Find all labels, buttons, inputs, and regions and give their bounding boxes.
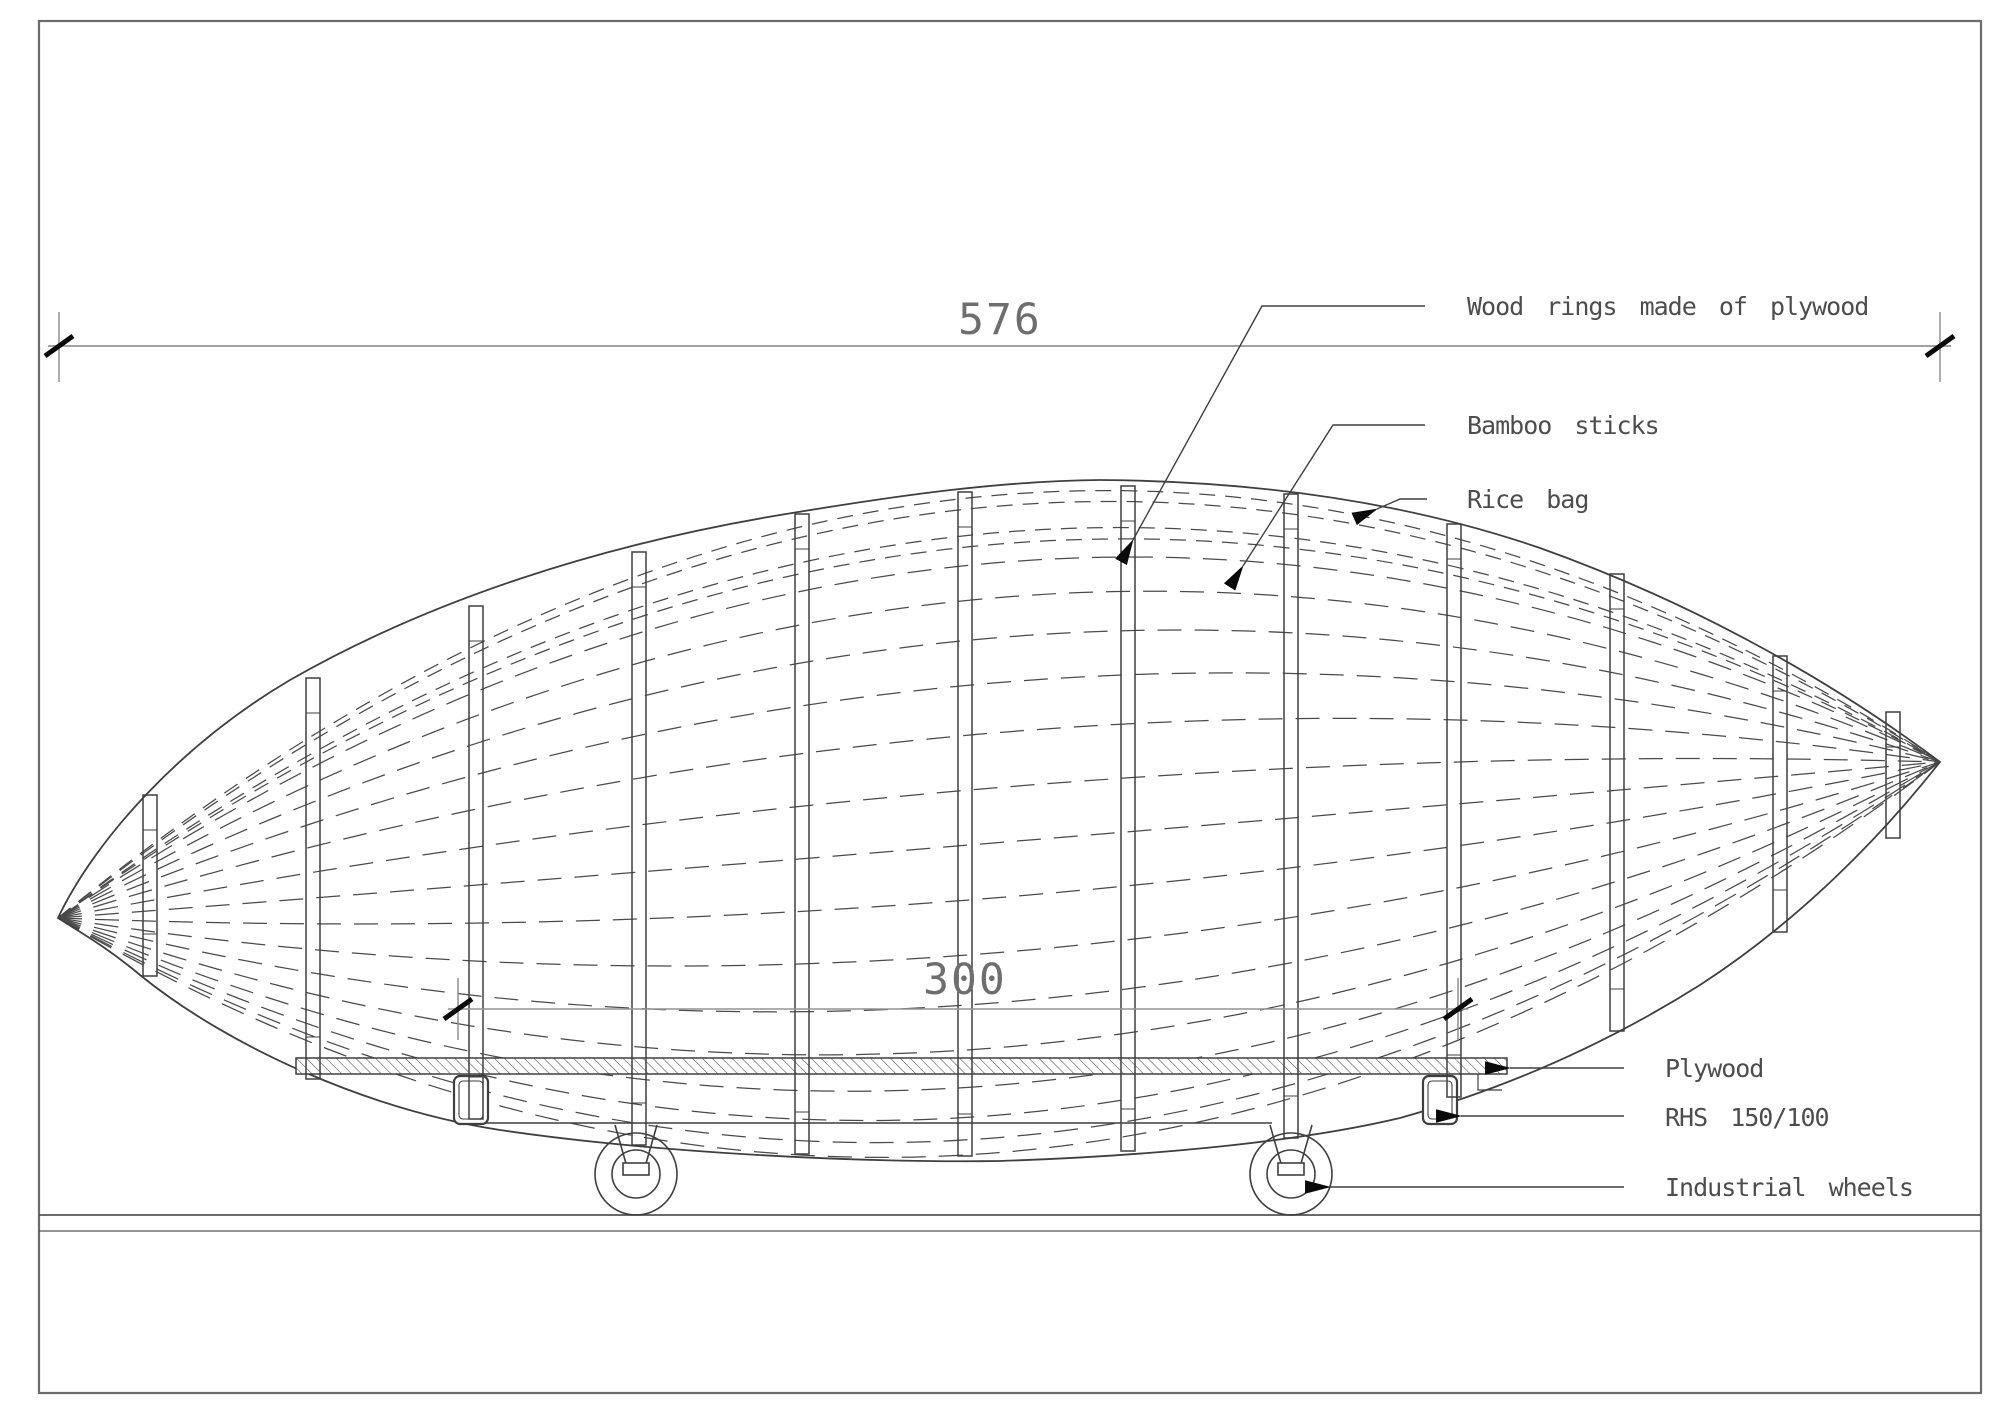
- rhs-tube-right: [1423, 1076, 1457, 1124]
- ground-lines: [39, 1215, 1981, 1231]
- leader-wood-rings: [1133, 306, 1425, 540]
- drawing-sheet: 576 300 Wood rings made of plywood Bambo…: [0, 0, 2000, 1412]
- label-rice-bag: Rice bag: [1467, 485, 1588, 514]
- industrial-wheels: [595, 1125, 1332, 1215]
- label-rhs: RHS 150/100: [1665, 1103, 1829, 1132]
- label-plywood: Plywood: [1665, 1054, 1763, 1083]
- overall-length-value: 576: [958, 295, 1042, 345]
- leader-bamboo-sticks: [1243, 425, 1425, 566]
- label-industrial-wheels: Industrial wheels: [1665, 1173, 1913, 1202]
- technical-drawing: 576 300 Wood rings made of plywood Bambo…: [0, 0, 2000, 1412]
- platform-length-value: 300: [923, 955, 1007, 1005]
- label-wood-rings: Wood rings made of plywood: [1467, 292, 1868, 321]
- label-bamboo-sticks: Bamboo sticks: [1467, 411, 1659, 440]
